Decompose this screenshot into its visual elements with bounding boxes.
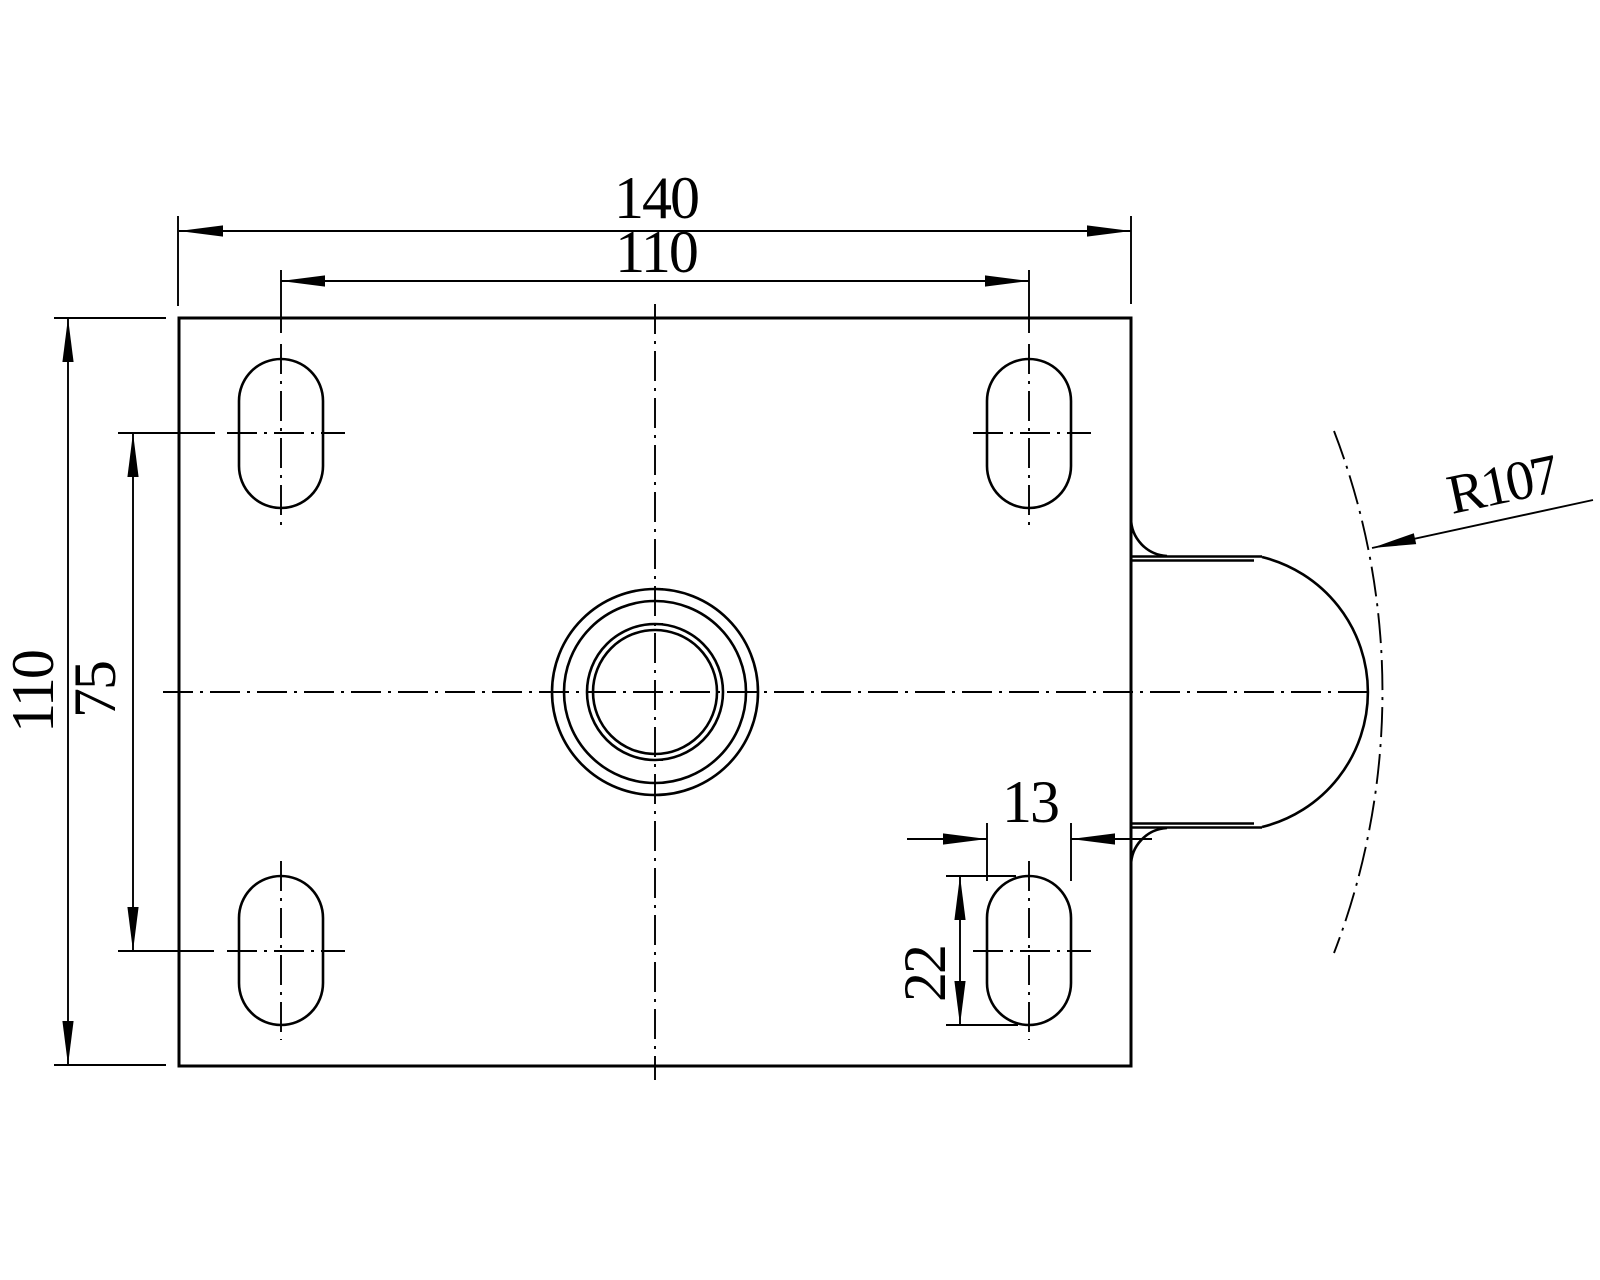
dim-bolt-spacing-width-label: 110	[615, 219, 697, 285]
dim-swivel-radius-label: R107	[1442, 443, 1564, 527]
wheel-hub-arc-top	[1131, 518, 1167, 556]
dim-slot-width-label: 13	[1002, 769, 1058, 835]
radius-callout-swivel: R107	[1334, 431, 1593, 953]
drawing-sheet: 140 110 110 75 13 22 R107	[0, 0, 1600, 1280]
dim-slot-length-label: 22	[892, 946, 958, 1002]
technical-drawing-caster-top-view: 140 110 110 75 13 22 R107	[0, 0, 1600, 1280]
center-lines	[163, 304, 1370, 1080]
wheel-hub-arc-bottom	[1131, 828, 1167, 866]
dim-bolt-spacing-height-label: 75	[62, 662, 128, 718]
dim-plate-height-label: 110	[0, 651, 66, 733]
